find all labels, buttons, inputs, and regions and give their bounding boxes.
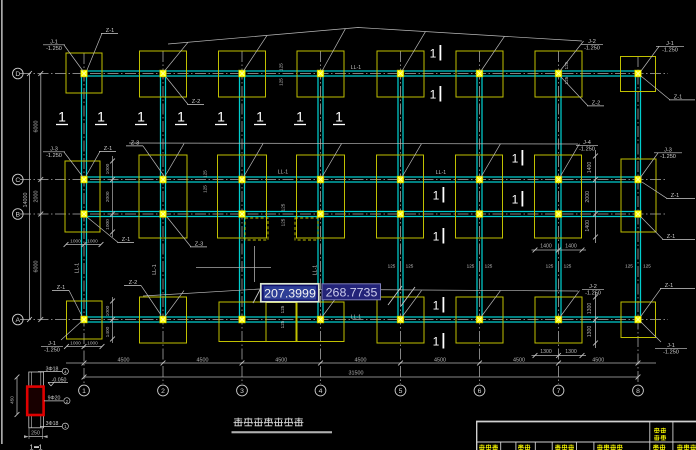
svg-text:LL-1: LL-1 (351, 65, 361, 71)
svg-text:2: 2 (161, 388, 165, 395)
svg-text:LL-1: LL-1 (152, 264, 158, 274)
svg-text:-1.250: -1.250 (579, 147, 595, 153)
svg-text:2000: 2000 (34, 191, 40, 203)
svg-text:125: 125 (203, 185, 208, 193)
svg-text:1: 1 (58, 109, 66, 125)
svg-text:1000: 1000 (105, 219, 111, 230)
svg-text:31500: 31500 (349, 371, 364, 377)
svg-text:1: 1 (433, 335, 440, 349)
svg-text:-1.250: -1.250 (663, 350, 679, 356)
svg-text:-1.250: -1.250 (44, 348, 60, 354)
svg-text:6000: 6000 (34, 121, 40, 133)
svg-text:125: 125 (564, 264, 572, 269)
svg-text:125: 125 (406, 264, 414, 269)
svg-text:1000: 1000 (87, 239, 98, 245)
svg-text:8: 8 (636, 388, 640, 395)
svg-text:1: 1 (137, 109, 145, 125)
svg-text:125: 125 (279, 63, 284, 71)
svg-text:1000: 1000 (105, 163, 111, 174)
svg-text:LL-1: LL-1 (75, 263, 81, 273)
svg-text:1: 1 (512, 152, 519, 166)
svg-text:125: 125 (643, 264, 651, 269)
svg-text:450: 450 (10, 396, 15, 404)
svg-text:125: 125 (485, 264, 493, 269)
svg-text:6: 6 (478, 388, 482, 395)
svg-text:6000: 6000 (34, 261, 40, 273)
svg-text:4500: 4500 (592, 357, 604, 363)
svg-text:125: 125 (280, 305, 285, 313)
svg-text:1: 1 (177, 109, 185, 125)
svg-text:125: 125 (467, 264, 475, 269)
svg-text:125: 125 (281, 218, 286, 226)
svg-text:2000: 2000 (585, 191, 591, 203)
svg-text:1: 1 (256, 109, 264, 125)
svg-text:125: 125 (280, 320, 285, 328)
svg-text:4500: 4500 (355, 357, 367, 363)
svg-text:1: 1 (97, 109, 105, 125)
svg-text:268.7735: 268.7735 (326, 285, 378, 299)
svg-text:2000: 2000 (105, 191, 111, 202)
svg-text:125: 125 (279, 78, 284, 86)
svg-text:1300: 1300 (587, 303, 593, 315)
svg-text:1: 1 (512, 193, 519, 207)
svg-text:125: 125 (546, 264, 554, 269)
svg-text:1: 1 (296, 109, 304, 125)
svg-text:1400: 1400 (585, 220, 591, 232)
svg-text:1: 1 (217, 109, 225, 125)
svg-text:4500: 4500 (118, 357, 130, 363)
svg-text:LL-1: LL-1 (313, 265, 319, 275)
svg-text:125: 125 (625, 264, 633, 269)
svg-text:C: C (15, 177, 20, 184)
svg-text:LL-1: LL-1 (351, 315, 361, 321)
svg-text:4500: 4500 (434, 357, 446, 363)
svg-text:3: 3 (240, 388, 244, 395)
svg-text:1: 1 (430, 47, 437, 61)
svg-text:1000: 1000 (70, 341, 81, 347)
svg-text:1400: 1400 (565, 243, 577, 249)
svg-text:1: 1 (433, 299, 440, 313)
svg-text:-1.250: -1.250 (584, 46, 600, 52)
svg-text:1: 1 (433, 189, 440, 203)
svg-text:1000: 1000 (70, 239, 81, 245)
svg-text:A: A (16, 317, 21, 324)
svg-text:4500: 4500 (275, 357, 287, 363)
svg-text:1000: 1000 (87, 341, 98, 347)
svg-text:1000: 1000 (105, 305, 111, 316)
svg-text:125: 125 (203, 170, 208, 178)
svg-text:-1.250: -1.250 (46, 46, 62, 52)
svg-text:-1.250: -1.250 (46, 153, 62, 159)
svg-text:125: 125 (281, 203, 286, 211)
svg-text:4500: 4500 (197, 357, 209, 363)
svg-text:1300: 1300 (565, 349, 577, 355)
svg-text:1400: 1400 (105, 326, 111, 337)
svg-text:1400: 1400 (540, 243, 552, 249)
svg-text:250: 250 (31, 430, 40, 436)
svg-text:1400: 1400 (587, 162, 593, 174)
svg-text:207.3999: 207.3999 (264, 287, 316, 301)
svg-text:1300: 1300 (587, 326, 593, 338)
svg-text:4500: 4500 (513, 357, 525, 363)
svg-text:LL-1: LL-1 (278, 170, 288, 176)
svg-text:125: 125 (564, 61, 569, 69)
svg-text:125: 125 (388, 264, 396, 269)
svg-text:1: 1 (82, 388, 86, 395)
svg-text:-1.250: -1.250 (660, 154, 676, 160)
svg-text:7: 7 (557, 388, 561, 395)
svg-text:-1.250: -1.250 (662, 48, 678, 54)
svg-text:1: 1 (29, 443, 33, 450)
svg-text:5: 5 (399, 388, 403, 395)
svg-text:-1.250: -1.250 (585, 291, 601, 297)
svg-text:LL-1: LL-1 (436, 170, 446, 176)
svg-text:1: 1 (38, 443, 42, 450)
svg-text:B: B (16, 211, 21, 218)
svg-text:1: 1 (430, 88, 437, 102)
svg-text:4: 4 (319, 388, 323, 395)
svg-text:1300: 1300 (540, 349, 552, 355)
svg-text:125: 125 (564, 76, 569, 84)
svg-text:D: D (15, 71, 20, 78)
svg-text:1: 1 (433, 230, 440, 244)
svg-text:14000: 14000 (23, 193, 29, 208)
svg-text:1: 1 (335, 109, 343, 125)
